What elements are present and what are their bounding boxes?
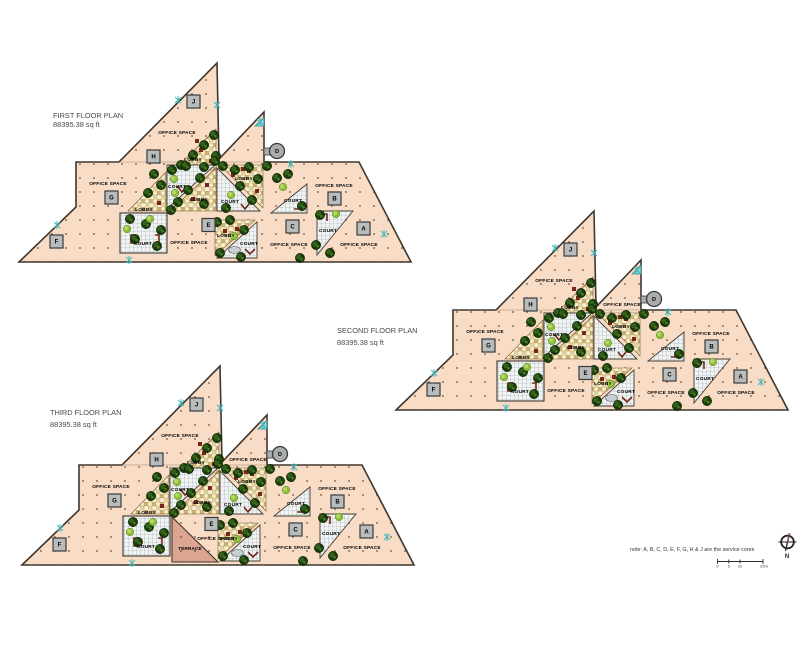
svg-text:note: A, B, C, D, E, F, G, H &: note: A, B, C, D, E, F, G, H & J are the… xyxy=(630,547,755,553)
svg-text:20m: 20m xyxy=(760,564,768,569)
svg-text:88395.38 sq ft: 88395.38 sq ft xyxy=(53,120,100,129)
svg-text:THIRD FLOOR PLAN: THIRD FLOOR PLAN xyxy=(50,408,121,417)
svg-text:E: E xyxy=(206,223,210,229)
svg-text:88395.38 sq ft: 88395.38 sq ft xyxy=(337,338,384,347)
svg-text:E: E xyxy=(583,371,587,377)
svg-text:10: 10 xyxy=(738,564,743,569)
svg-text:OFFICE SPACE: OFFICE SPACE xyxy=(197,536,235,542)
svg-text:88395.38 sq ft: 88395.38 sq ft xyxy=(50,420,97,429)
svg-text:OFFICE SPACE: OFFICE SPACE xyxy=(229,457,267,463)
svg-text:5: 5 xyxy=(728,564,731,569)
svg-text:OFFICE SPACE: OFFICE SPACE xyxy=(603,302,641,308)
svg-text:0: 0 xyxy=(716,564,719,569)
svg-text:TERRACE: TERRACE xyxy=(178,546,202,551)
svg-text:OFFICE SPACE: OFFICE SPACE xyxy=(170,240,208,246)
svg-text:FIRST FLOOR PLAN: FIRST FLOOR PLAN xyxy=(53,111,123,120)
svg-text:N: N xyxy=(785,554,789,560)
svg-text:SECOND FLOOR PLAN: SECOND FLOOR PLAN xyxy=(337,326,418,335)
svg-text:E: E xyxy=(209,522,213,528)
svg-text:OFFICE SPACE: OFFICE SPACE xyxy=(547,388,585,394)
